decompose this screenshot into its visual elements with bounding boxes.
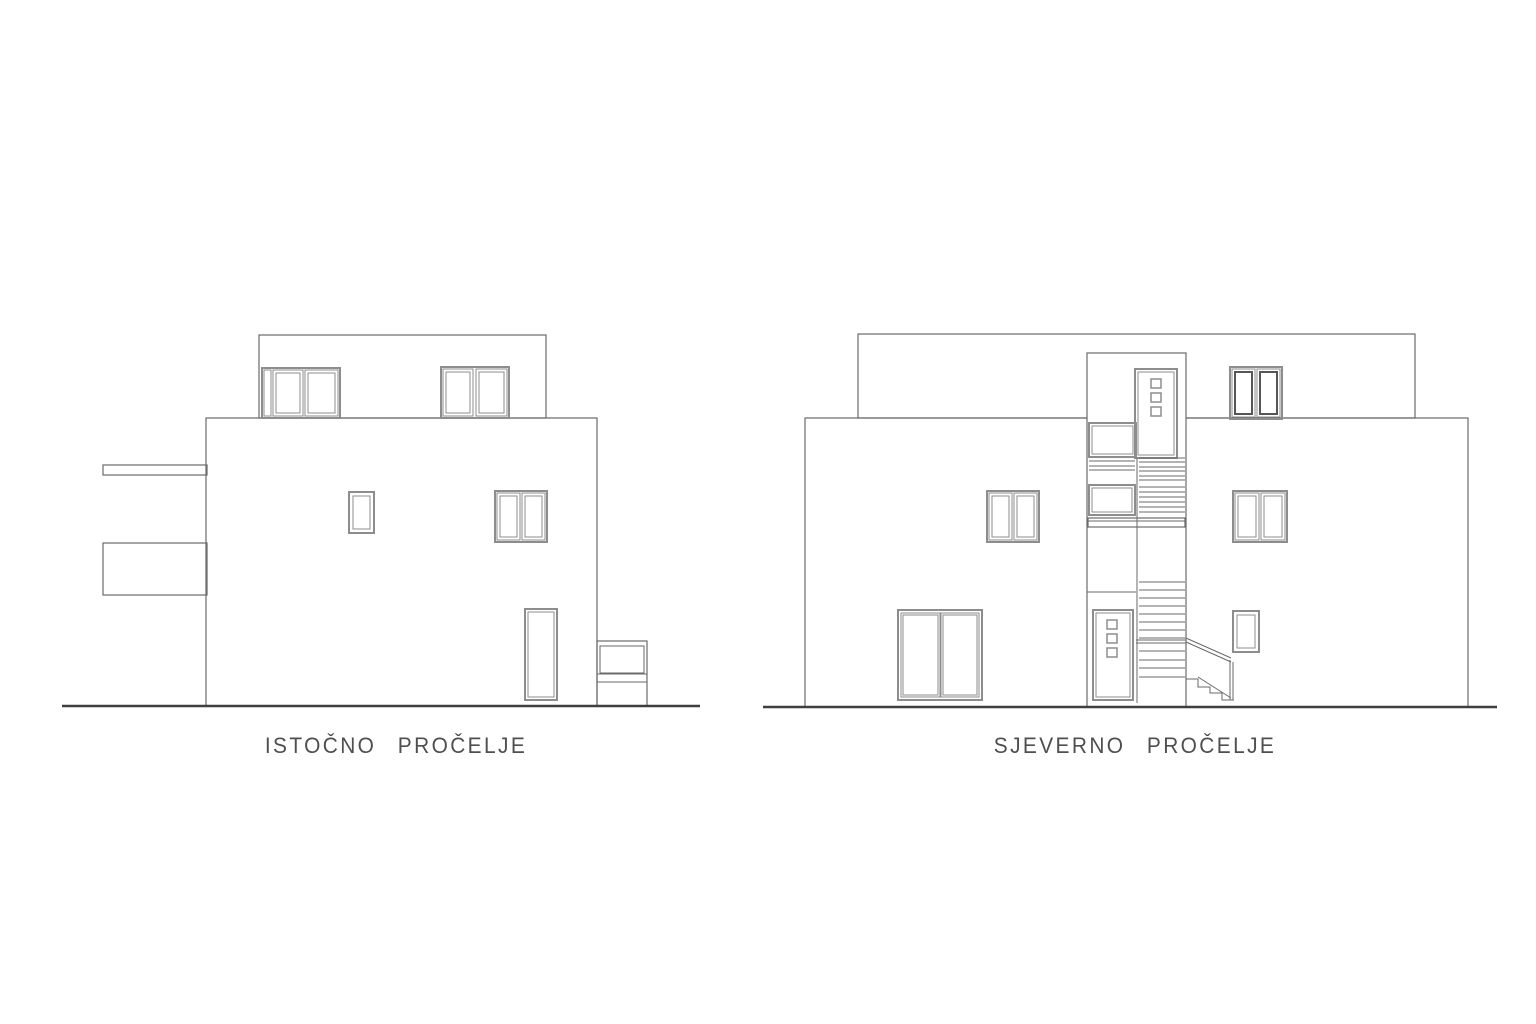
elevation-canvas [0, 0, 1536, 1024]
caption-east-elevation: ISTOČNO PROČELJE [265, 733, 527, 759]
north-elevation-geometry [763, 334, 1497, 707]
east-elevation-geometry [62, 335, 700, 706]
drawing-sheet: ISTOČNO PROČELJE SJEVERNO PROČELJE [0, 0, 1536, 1024]
caption-north-elevation: SJEVERNO PROČELJE [994, 733, 1276, 759]
